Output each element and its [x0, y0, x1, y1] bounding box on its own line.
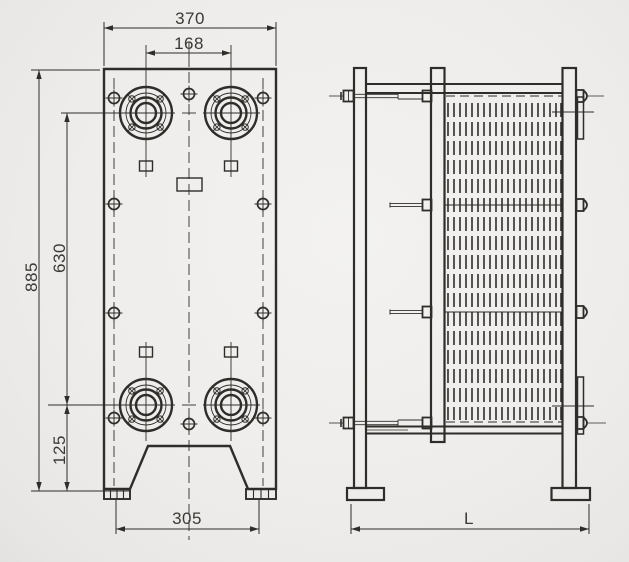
dimension-305: 305: [116, 500, 259, 534]
dim-630-label: 630: [50, 243, 69, 273]
tie-bolt-upper-middle: [390, 199, 587, 211]
dimension-168: 168: [146, 34, 231, 56]
dim-305-label: 305: [172, 509, 202, 528]
pads: [140, 161, 238, 357]
dim-370-label: 370: [175, 9, 205, 28]
plate-pack: [448, 103, 561, 420]
pressure-plate: [563, 68, 577, 488]
foot-front: [552, 488, 591, 500]
drawing-canvas: 370 168 885 630: [0, 0, 629, 562]
nozzle-centerlines: [552, 112, 594, 406]
frame-bolts: [106, 86, 272, 433]
dim-885-label: 885: [22, 262, 41, 292]
dimension-885: 885: [22, 70, 131, 491]
dim-L-label: L: [464, 509, 474, 528]
frame-plate-fixed: [431, 68, 445, 442]
tie-bolt-lower-middle: [390, 306, 587, 318]
dimension-630: 630: [50, 113, 175, 405]
dim-168-label: 168: [174, 34, 204, 53]
side-view: L: [329, 68, 606, 534]
foot-right: [246, 489, 276, 499]
pressure-plate-brackets: [578, 97, 584, 434]
dim-125-label: 125: [50, 435, 69, 465]
carrying-bar-top: [366, 84, 563, 93]
foot-rear: [347, 488, 384, 500]
front-view: 370 168 885 630: [22, 9, 276, 540]
dimension-L: L: [351, 504, 589, 534]
